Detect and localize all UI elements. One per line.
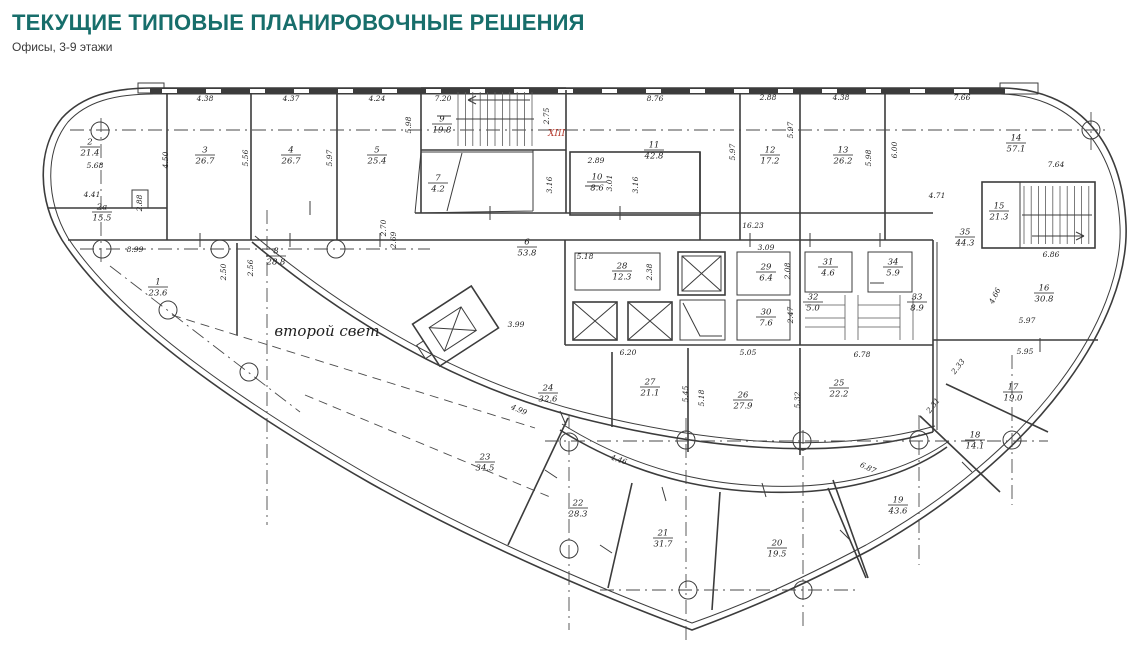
svg-text:29: 29 (760, 263, 772, 273)
svg-text:5.97: 5.97 (786, 121, 795, 138)
svg-text:27.9: 27.9 (733, 402, 754, 412)
svg-text:6.78: 6.78 (854, 350, 871, 359)
svg-text:57.1: 57.1 (1007, 145, 1026, 155)
svg-text:10: 10 (592, 173, 603, 183)
room-label: 2228.3 (568, 499, 588, 520)
room-label: 2721.1 (640, 378, 660, 399)
svg-text:28.8: 28.8 (266, 258, 287, 268)
svg-text:13: 13 (838, 146, 849, 156)
svg-text:2.70: 2.70 (379, 219, 388, 237)
svg-text:7.66: 7.66 (954, 93, 971, 102)
svg-text:4.37: 4.37 (282, 94, 300, 103)
svg-text:4.41: 4.41 (83, 190, 101, 199)
page-title: ТЕКУЩИЕ ТИПОВЫЕ ПЛАНИРОВОЧНЫЕ РЕШЕНИЯ (12, 10, 585, 36)
room-label: 2131.7 (653, 529, 673, 550)
svg-text:1: 1 (155, 278, 160, 288)
svg-text:28: 28 (616, 262, 628, 272)
svg-text:7.64: 7.64 (1048, 160, 1065, 169)
svg-text:4.2: 4.2 (430, 185, 445, 195)
svg-text:7.6: 7.6 (759, 319, 773, 329)
room-label: 296.4 (756, 263, 776, 284)
room-label: 1142.8 (644, 141, 665, 162)
svg-text:16.23: 16.23 (742, 221, 764, 230)
room-label: 2627.9 (733, 391, 754, 412)
svg-text:2.33: 2.33 (949, 357, 967, 377)
svg-text:4.66: 4.66 (987, 286, 1003, 306)
svg-text:14: 14 (1011, 134, 1022, 144)
room-label: 345.9 (883, 258, 903, 279)
svg-text:8.76: 8.76 (647, 94, 664, 103)
svg-text:31: 31 (823, 258, 834, 268)
svg-text:2.88: 2.88 (135, 194, 144, 212)
svg-text:21.1: 21.1 (640, 389, 660, 399)
svg-text:23: 23 (479, 453, 491, 463)
room-label: 307.6 (756, 308, 776, 329)
room-label: 3544.3 (955, 228, 975, 249)
svg-text:4.46: 4.46 (608, 452, 628, 466)
svg-text:8.99: 8.99 (127, 245, 144, 254)
atrium-elevator (406, 286, 499, 370)
svg-text:21.4: 21.4 (80, 149, 100, 159)
svg-text:5.56: 5.56 (241, 149, 250, 166)
svg-text:19.8: 19.8 (433, 126, 453, 136)
svg-text:7.20: 7.20 (435, 94, 452, 103)
svg-text:5.98: 5.98 (404, 116, 413, 133)
room-label: 2019.5 (767, 539, 787, 560)
svg-text:22: 22 (572, 499, 584, 509)
svg-text:35: 35 (960, 228, 971, 238)
svg-text:5.95: 5.95 (1017, 347, 1034, 356)
svg-text:44.3: 44.3 (955, 239, 975, 249)
svg-text:12: 12 (765, 146, 776, 156)
room-label: 919.8 (432, 115, 452, 136)
svg-text:5.0: 5.0 (806, 304, 820, 314)
svg-text:3.99: 3.99 (508, 320, 525, 329)
svg-text:2а: 2а (96, 203, 107, 213)
svg-text:2.50: 2.50 (219, 263, 228, 281)
room-label: 2432.6 (538, 384, 558, 405)
svg-text:4.50: 4.50 (161, 151, 170, 169)
room-label: 426.7 (281, 146, 302, 167)
room-label: 1326.2 (833, 146, 853, 167)
svg-text:3: 3 (202, 146, 207, 156)
svg-text:19: 19 (893, 496, 904, 506)
page-subtitle: Офисы, 3-9 этажи (12, 40, 585, 54)
svg-text:16: 16 (1039, 284, 1050, 294)
svg-text:5.05: 5.05 (740, 348, 757, 357)
svg-text:4.71: 4.71 (928, 191, 946, 200)
svg-text:4: 4 (287, 146, 293, 156)
svg-text:8: 8 (273, 247, 279, 257)
svg-text:21.3: 21.3 (989, 213, 1009, 223)
svg-text:5.98: 5.98 (864, 149, 873, 166)
svg-text:25.4: 25.4 (367, 157, 387, 167)
svg-text:8.9: 8.9 (910, 304, 924, 314)
svg-text:2.75: 2.75 (542, 107, 551, 125)
svg-text:26.7: 26.7 (281, 157, 302, 167)
svg-text:42.8: 42.8 (644, 152, 665, 162)
svg-text:14.1: 14.1 (966, 442, 985, 452)
svg-text:17.2: 17.2 (761, 157, 780, 167)
svg-text:2.31: 2.31 (924, 396, 942, 415)
corridor-arcs (252, 236, 949, 492)
svg-text:2.08: 2.08 (783, 262, 792, 280)
floor-plan: 123.6221.42а15.5326.7426.7525.4653.874.2… (0, 0, 1136, 642)
svg-text:9: 9 (439, 115, 445, 125)
svg-text:2.56: 2.56 (246, 259, 255, 277)
room-label: 123.6 (148, 278, 169, 299)
svg-text:19.5: 19.5 (768, 550, 787, 560)
svg-text:43.6: 43.6 (888, 507, 909, 517)
svg-text:24: 24 (542, 384, 554, 394)
grid-lines (70, 112, 1105, 640)
interior-walls (48, 90, 1098, 610)
svg-text:15: 15 (994, 202, 1005, 212)
svg-text:4.99: 4.99 (509, 402, 529, 417)
svg-text:6.00: 6.00 (890, 141, 899, 158)
svg-text:5.97: 5.97 (728, 143, 737, 160)
svg-text:31.7: 31.7 (654, 540, 674, 550)
room-label: 525.4 (367, 146, 387, 167)
room-label: 338.9 (907, 293, 927, 314)
svg-text:17: 17 (1008, 383, 1019, 393)
svg-text:33: 33 (912, 293, 923, 303)
room-label: 314.6 (818, 258, 838, 279)
svg-text:7: 7 (435, 174, 441, 184)
svg-text:34: 34 (888, 258, 899, 268)
dimension-labels: 4.384.374.247.208.762.884.387.664.505.56… (83, 93, 1065, 475)
svg-text:3.16: 3.16 (545, 176, 554, 193)
svg-text:5.97: 5.97 (1019, 316, 1036, 325)
room-label: 108.6 (587, 173, 607, 194)
svg-text:2.88: 2.88 (759, 93, 777, 102)
svg-text:2.47: 2.47 (786, 306, 795, 324)
svg-text:20: 20 (771, 539, 783, 549)
svg-text:15.5: 15.5 (93, 214, 112, 224)
svg-text:11: 11 (649, 141, 660, 151)
svg-text:6: 6 (524, 238, 530, 248)
room-label: 2812.3 (612, 262, 632, 283)
svg-text:26: 26 (737, 391, 749, 401)
room-label: 2522.2 (829, 379, 849, 400)
room-label: 1217.2 (760, 146, 780, 167)
svg-text:30.8: 30.8 (1035, 295, 1055, 305)
svg-text:5.97: 5.97 (325, 149, 334, 166)
svg-text:5.32: 5.32 (793, 391, 802, 408)
svg-text:6.86: 6.86 (1043, 250, 1060, 259)
room-label: 1719.0 (1003, 383, 1023, 404)
room-label: 1457.1 (1006, 134, 1026, 155)
svg-text:23.6: 23.6 (148, 289, 169, 299)
svg-text:19.0: 19.0 (1004, 394, 1024, 404)
room-label: 1521.3 (989, 202, 1009, 223)
svg-text:4.38: 4.38 (832, 93, 850, 102)
room-label: 2а15.5 (92, 203, 112, 224)
svg-text:26.2: 26.2 (833, 157, 853, 167)
stair-section-mark: XIII (547, 129, 566, 139)
svg-text:2: 2 (86, 138, 92, 148)
svg-text:22.2: 22.2 (829, 390, 849, 400)
svg-text:30: 30 (761, 308, 772, 318)
svg-text:21: 21 (657, 529, 669, 539)
svg-text:53.8: 53.8 (518, 249, 538, 259)
svg-text:6.87: 6.87 (859, 460, 878, 475)
svg-text:32: 32 (808, 293, 819, 303)
room-label: 1630.8 (1034, 284, 1054, 305)
svg-text:5.45: 5.45 (681, 385, 690, 402)
svg-text:5.68: 5.68 (87, 161, 104, 170)
svg-text:32.6: 32.6 (539, 395, 559, 405)
svg-text:3.16: 3.16 (631, 176, 640, 193)
svg-text:12.3: 12.3 (613, 273, 632, 283)
svg-text:5.9: 5.9 (886, 269, 900, 279)
svg-text:25: 25 (833, 379, 845, 389)
svg-text:4.38: 4.38 (196, 94, 214, 103)
room-label: 828.8 (266, 247, 287, 268)
svg-text:34.5: 34.5 (476, 464, 495, 474)
svg-text:28.3: 28.3 (568, 510, 588, 520)
svg-text:5.18: 5.18 (577, 252, 594, 261)
room-label: 74.2 (428, 174, 448, 195)
facade-band (150, 88, 1005, 94)
svg-text:6.4: 6.4 (759, 274, 773, 284)
second-light-label: второй свет (274, 322, 379, 340)
svg-text:5: 5 (374, 146, 379, 156)
room-label: 325.0 (803, 293, 823, 314)
room-label: 326.7 (195, 146, 216, 167)
svg-text:2.89: 2.89 (587, 156, 605, 165)
svg-text:2.38: 2.38 (645, 263, 654, 281)
svg-text:4.6: 4.6 (820, 269, 835, 279)
floor-plan-drawing: 123.6221.42а15.5326.7426.7525.4653.874.2… (0, 0, 1136, 642)
svg-text:18: 18 (970, 431, 981, 441)
svg-text:6.20: 6.20 (620, 348, 637, 357)
svg-text:8.6: 8.6 (590, 184, 604, 194)
svg-text:26.7: 26.7 (195, 157, 216, 167)
room-label: 221.4 (80, 138, 100, 159)
room-label: 1814.1 (965, 431, 985, 452)
svg-text:4.24: 4.24 (368, 94, 386, 103)
room-label: 1943.6 (888, 496, 909, 517)
svg-text:5.18: 5.18 (697, 389, 706, 406)
svg-text:2.69: 2.69 (389, 231, 398, 249)
svg-text:27: 27 (644, 378, 656, 388)
svg-text:3.09: 3.09 (758, 243, 775, 252)
page-header: ТЕКУЩИЕ ТИПОВЫЕ ПЛАНИРОВОЧНЫЕ РЕШЕНИЯ Оф… (12, 10, 585, 54)
svg-text:3.01: 3.01 (605, 175, 614, 192)
room-label: 2334.5 (475, 453, 495, 474)
